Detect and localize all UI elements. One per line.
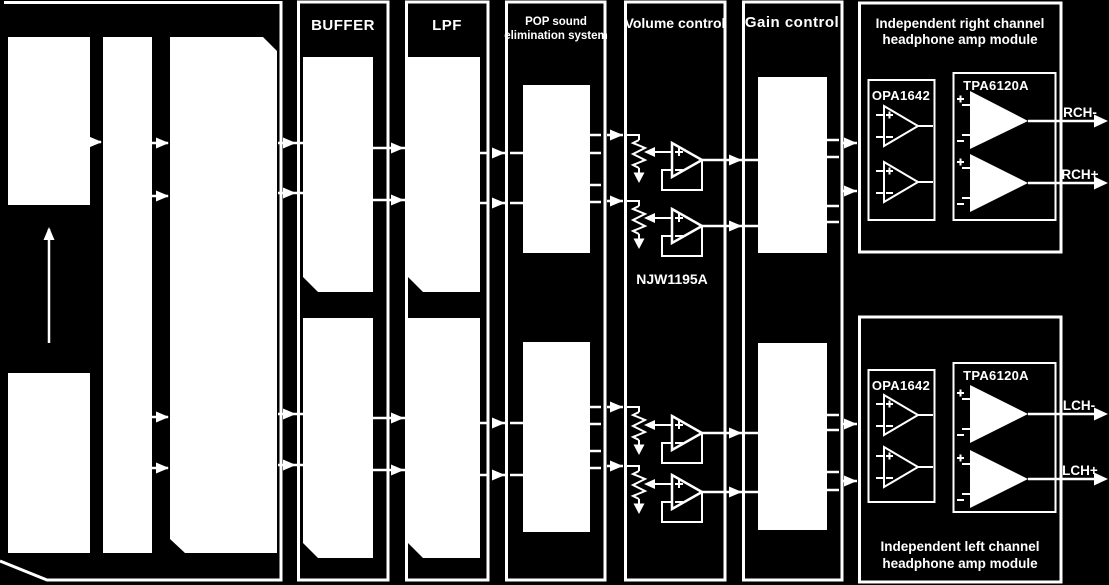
dac-block-d <box>8 373 90 553</box>
buffer-panel-label: BUFFER <box>311 17 375 34</box>
lch-minus-label: LCH- <box>1063 398 1095 413</box>
gain-upper-block <box>758 77 827 253</box>
rch-minus-label: RCH- <box>1063 105 1097 120</box>
lpf-panel-label: LPF <box>432 17 462 34</box>
buffer-upper-block <box>303 57 373 292</box>
volume-panel-label: Volume control <box>625 15 726 31</box>
right-module-title-line1: Independent right channel <box>876 16 1045 31</box>
pop-upper-block <box>523 85 590 253</box>
lch-plus-label: LCH+ <box>1062 463 1098 478</box>
pop-panel-label-line1: POP sound <box>525 16 587 28</box>
tpa6120a-label: TPA6120A <box>963 78 1029 93</box>
lpf-upper-block <box>408 57 480 292</box>
opa1642-label: OPA1642 <box>872 378 930 393</box>
audio-signal-chain-diagram: BUFFER LPF <box>0 0 1109 585</box>
gain-lower-block <box>758 343 827 530</box>
lpf-lower-block <box>408 318 480 558</box>
dac-block-a <box>8 37 90 205</box>
rch-plus-label: RCH+ <box>1061 167 1098 182</box>
pop-lower-block <box>523 342 590 532</box>
tpa6120a-label: TPA6120A <box>963 368 1029 383</box>
left-module-title-line2: headphone amp module <box>882 556 1038 571</box>
buffer-lower-block <box>303 318 373 558</box>
left-module-title-line1: Independent left channel <box>880 539 1039 554</box>
dac-block-b <box>103 37 152 553</box>
pop-panel-label-line2: elimination system <box>504 30 608 42</box>
opa1642-label: OPA1642 <box>872 88 930 103</box>
gain-panel-label: Gain control <box>745 14 839 31</box>
dac-block-c <box>170 37 277 553</box>
volume-chip-label: NJW1195A <box>636 271 708 287</box>
right-module-title-line2: headphone amp module <box>882 32 1038 47</box>
